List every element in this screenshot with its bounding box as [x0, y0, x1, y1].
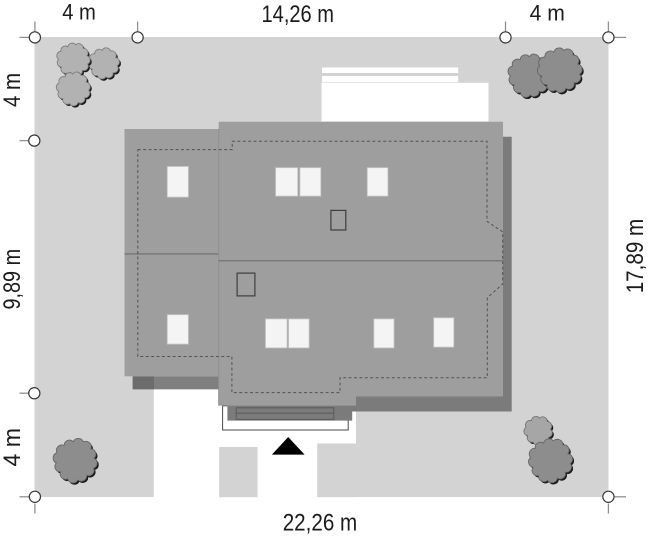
svg-text:17,89 m: 17,89 m — [622, 219, 648, 294]
svg-text:22,26 m: 22,26 m — [283, 509, 358, 536]
svg-text:4 m: 4 m — [62, 0, 96, 24]
svg-text:9,89 m: 9,89 m — [0, 249, 26, 310]
svg-text:4 m: 4 m — [0, 73, 26, 107]
svg-text:14,26 m: 14,26 m — [262, 1, 335, 28]
svg-text:4 m: 4 m — [530, 0, 565, 25]
svg-text:4 m: 4 m — [0, 428, 26, 467]
